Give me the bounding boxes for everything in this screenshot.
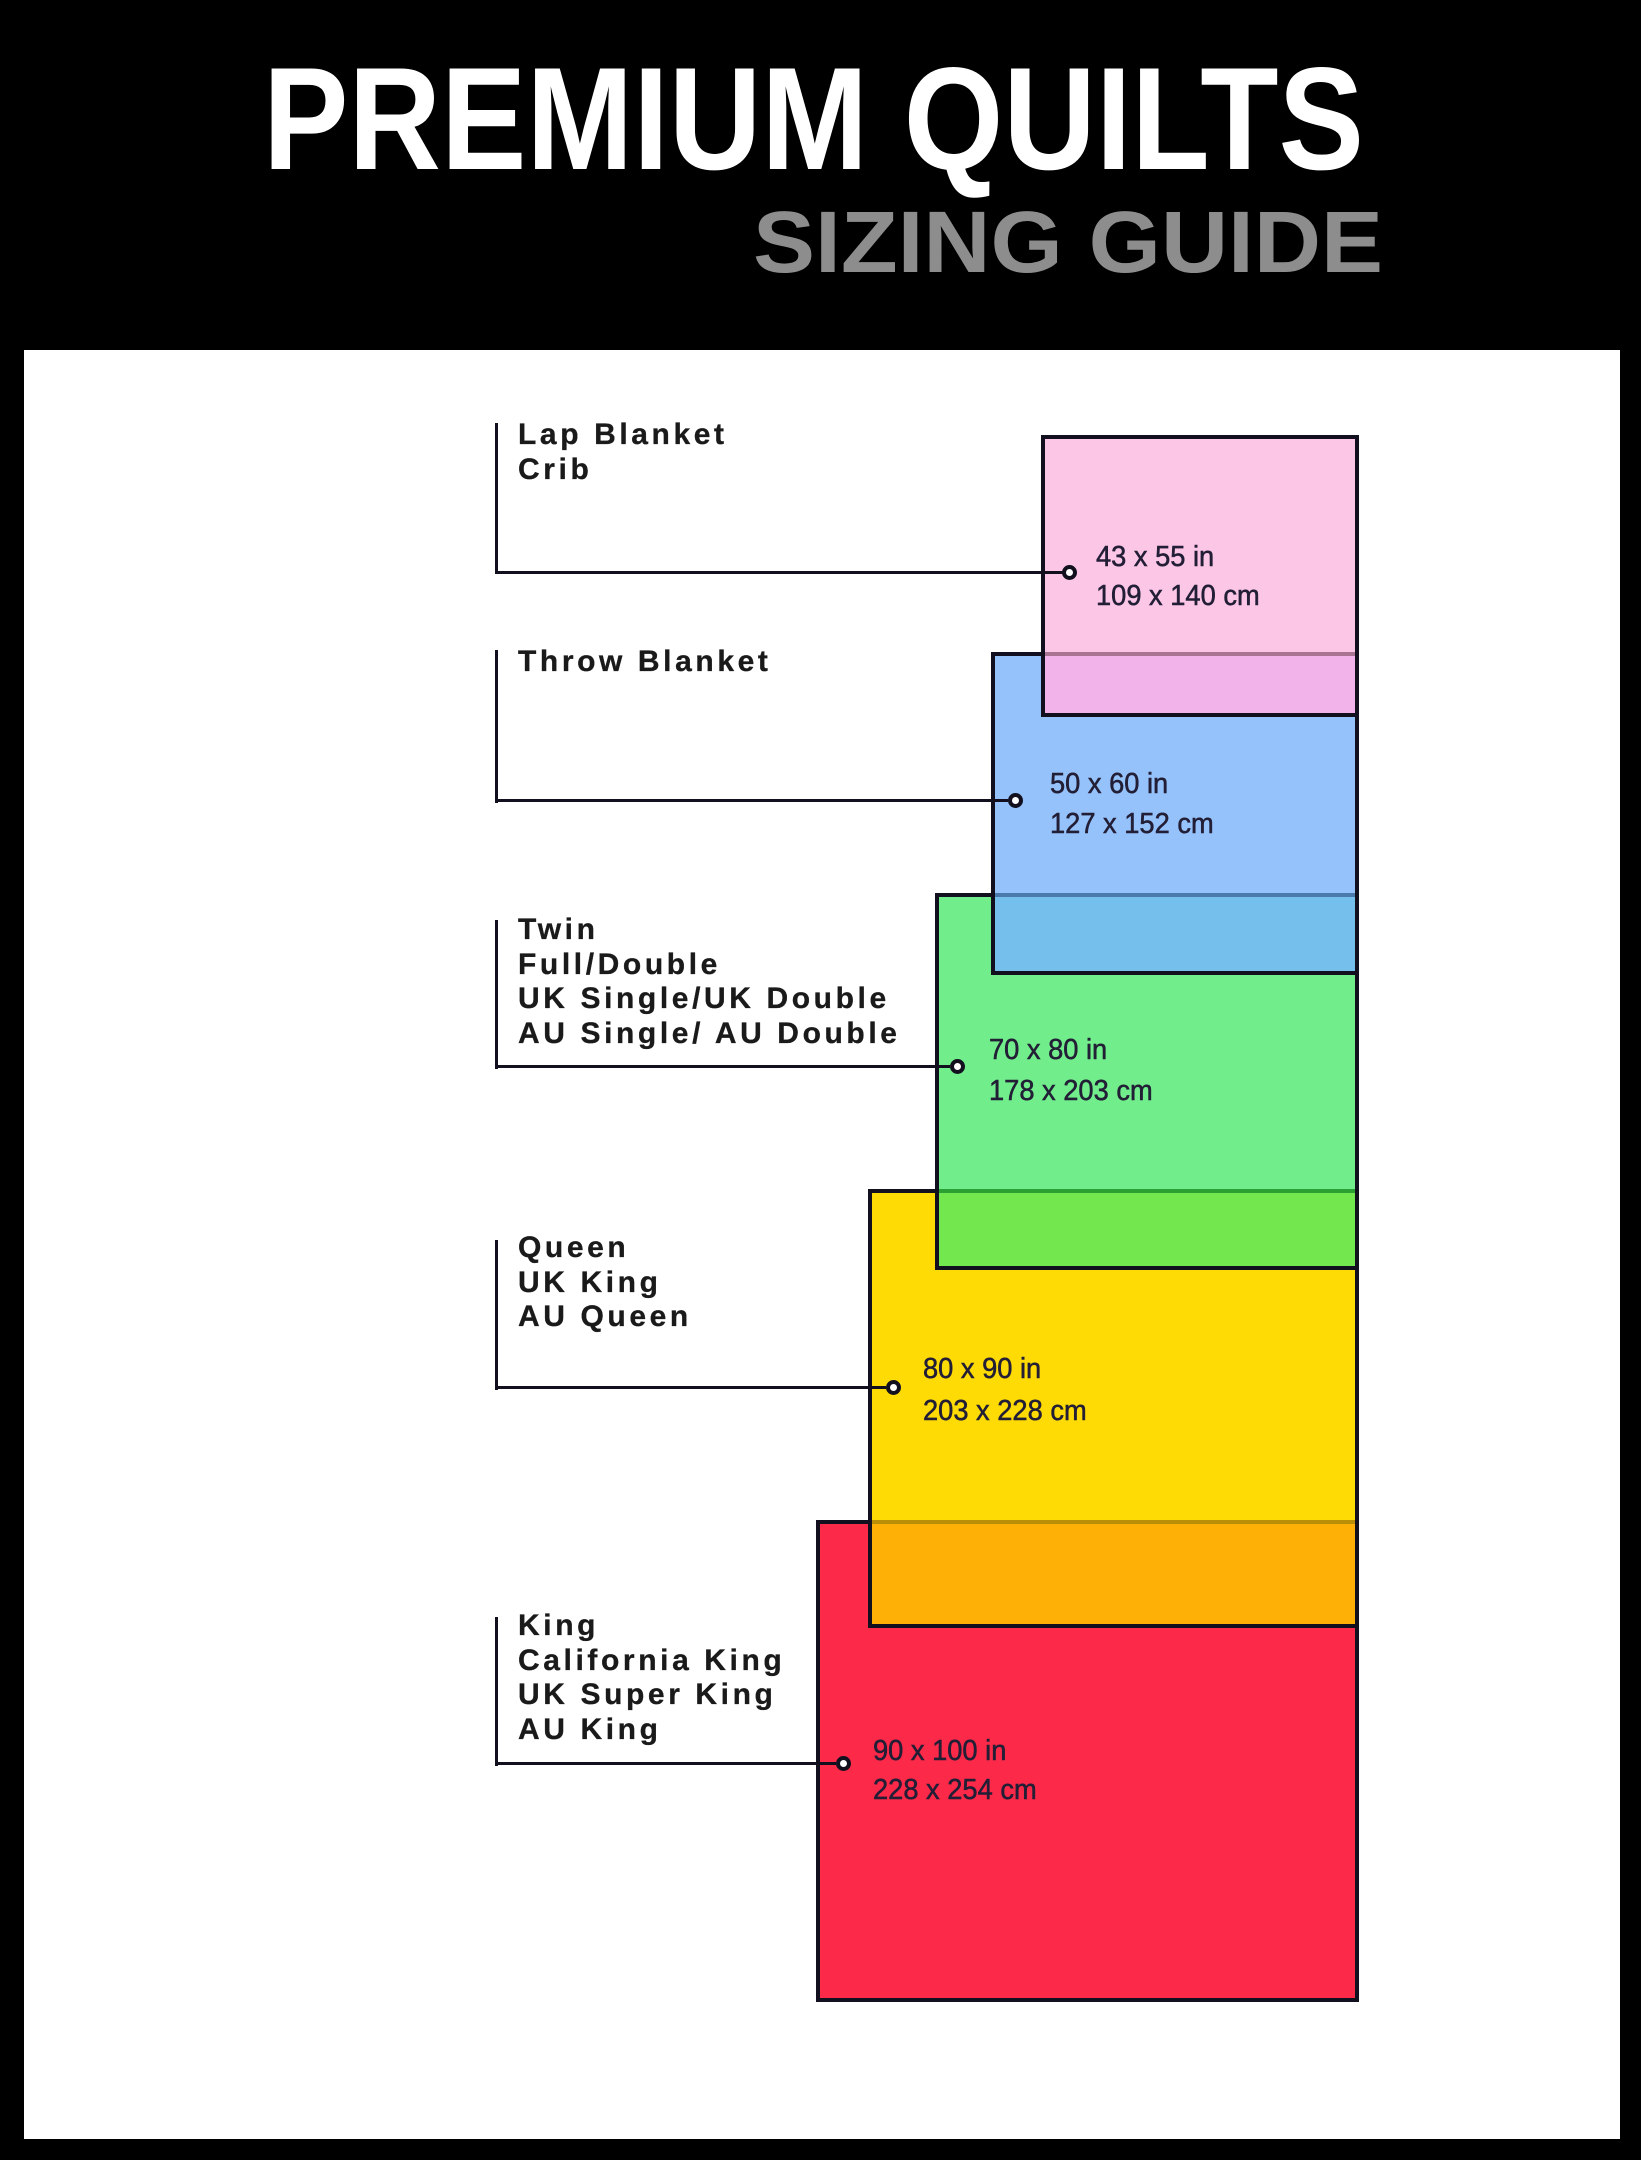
svg-text:SIZING GUIDE: SIZING GUIDE <box>753 194 1383 291</box>
svg-text:PREMIUM QUILTS: PREMIUM QUILTS <box>263 37 1364 200</box>
